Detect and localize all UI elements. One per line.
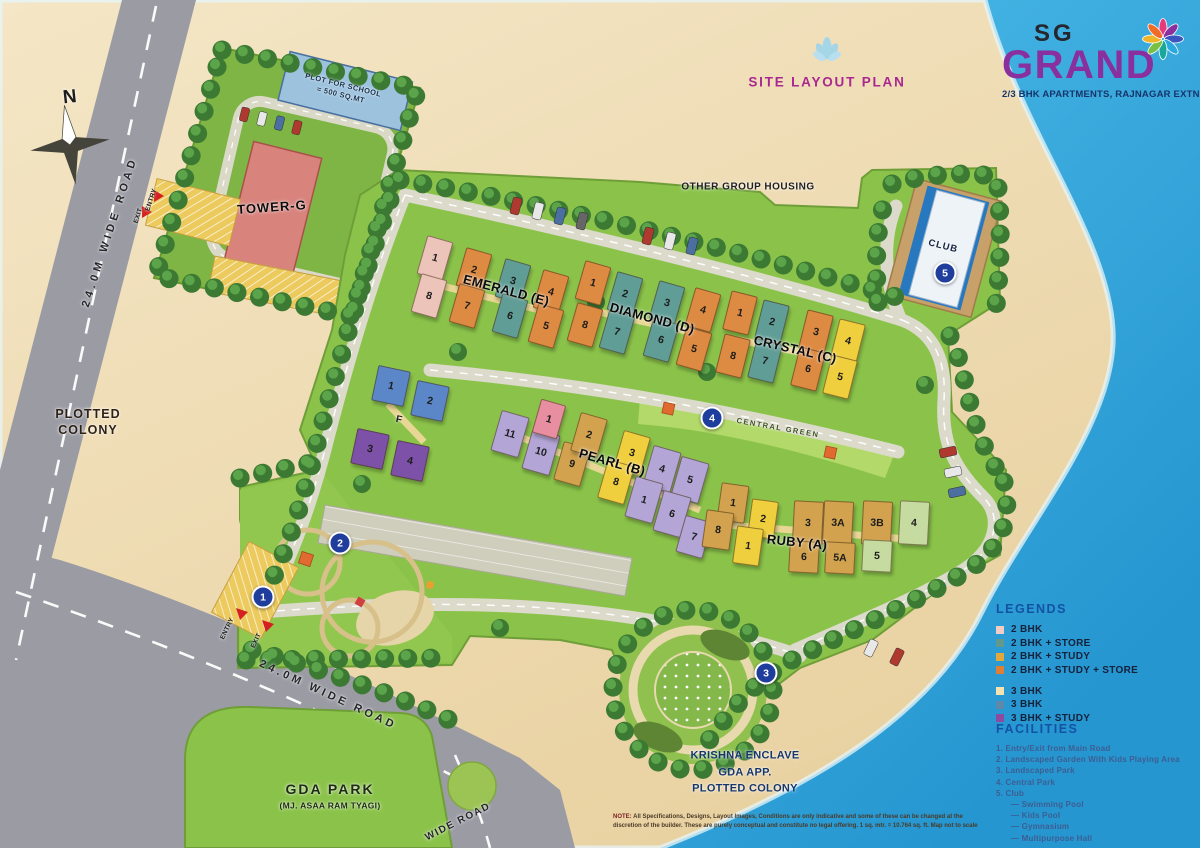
legend-label: 3 BHK [1011, 686, 1043, 697]
facilities-title: FACILITIES [996, 722, 1200, 736]
legends-title: LEGENDS [996, 602, 1138, 616]
site-layout-plan: .tr1{fill:none;stroke:#3c7a34;stroke-wid… [0, 0, 1200, 848]
legends-panel: LEGENDS 2 BHK 2 BHK + STORE 2 BHK + STUD… [996, 602, 1138, 726]
legend-swatch [996, 653, 1004, 661]
legend-item: 2 BHK [996, 624, 1138, 635]
legend-item: 2 BHK + STUDY + STORE [996, 665, 1138, 676]
facility-sub-item: — Multipurpose Hall [1011, 834, 1200, 843]
legend-item: 3 BHK [996, 686, 1138, 697]
facilities-panel: FACILITIES 1. Entry/Exit from Main Road … [996, 722, 1200, 845]
legend-swatch [996, 626, 1004, 634]
gda-park [185, 707, 452, 848]
legend-item: 2 BHK + STUDY [996, 651, 1138, 662]
legend-item: 3 BHK [996, 699, 1138, 710]
legend-label: 2 BHK + STUDY + STORE [1011, 665, 1138, 676]
legend-swatch [996, 687, 1004, 695]
facility-sub-item: — Kids Pool [1011, 811, 1200, 820]
legend-label: 2 BHK + STORE [1011, 638, 1091, 649]
disclaimer-note: NOTE: All Specifications, Designs, Layou… [613, 813, 985, 832]
plan-title: SITE LAYOUT PLAN [748, 75, 905, 90]
facility-item: 3. Landscaped Park [996, 766, 1200, 775]
legend-swatch [996, 639, 1004, 647]
facility-item: 5. Club [996, 789, 1200, 798]
note-line2: These are purely conceptual and constitu… [684, 823, 977, 829]
facility-item: 1. Entry/Exit from Main Road [996, 744, 1200, 753]
legend-swatch [996, 714, 1004, 722]
legend-label: 3 BHK [1011, 699, 1043, 710]
legend-swatch [996, 701, 1004, 709]
roundabout [448, 762, 496, 810]
legend-label: 2 BHK + STUDY [1011, 651, 1090, 662]
lotus-icon [801, 35, 853, 65]
brand-logo: SG GRAND 2/3 BHK APARTMENTS, RAJNAGAR EX… [1002, 22, 1186, 100]
logo-tagline: 2/3 BHK APARTMENTS, RAJNAGAR EXTN. [1002, 89, 1186, 100]
note-label: NOTE: [613, 814, 632, 820]
facility-sub-item: — Swimming Pool [1011, 800, 1200, 809]
facility-item: 4. Central Park [996, 778, 1200, 787]
facility-item: 2. Landscaped Garden With Kids Playing A… [996, 755, 1200, 764]
legend-label: 2 BHK [1011, 624, 1043, 635]
legend-item: 2 BHK + STORE [996, 638, 1138, 649]
legend-swatch [996, 666, 1004, 674]
logo-pinwheel-icon [1140, 16, 1186, 62]
facility-sub-item: — Gymnasium [1011, 822, 1200, 831]
